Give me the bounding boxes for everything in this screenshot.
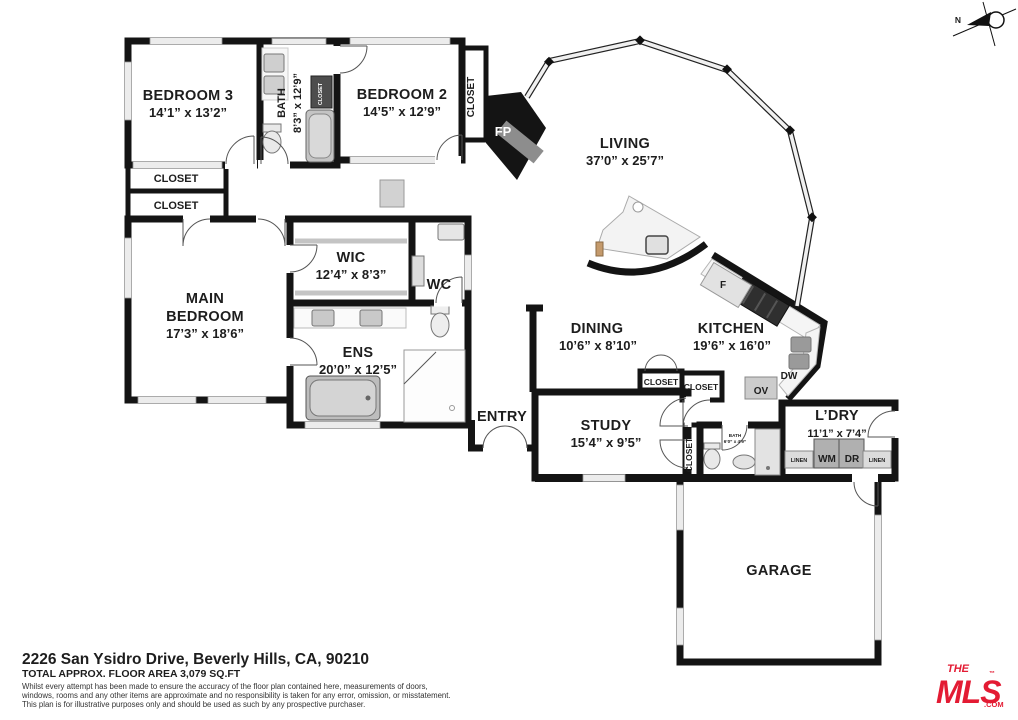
closet-hall-b-label: CLOSET (684, 382, 719, 392)
bar-sink-icon (646, 236, 668, 254)
mls-logo-com: .COM (984, 700, 1004, 709)
window-icon (272, 39, 326, 45)
dishwasher-label: DW (781, 371, 798, 382)
window-icon (583, 475, 625, 482)
small-bath-label: BATH (729, 433, 742, 438)
sink-icon (264, 54, 284, 72)
bath-dims: 8’3” x 12’9” (292, 73, 304, 133)
toilet-icon (704, 443, 720, 449)
dishwasher-icon (791, 337, 811, 352)
main-bedroom-label2: BEDROOM (166, 309, 244, 325)
window-icon (677, 485, 684, 530)
bedroom2-dims: 14’5” x 12’9” (363, 104, 441, 119)
window-icon (305, 422, 380, 429)
mls-logo-tm: ™ (989, 670, 995, 677)
bathtub-inner-icon (309, 114, 331, 158)
bedroom3-label: BEDROOM 3 (143, 88, 234, 104)
address: 2226 San Ysidro Drive, Beverly Hills, CA… (22, 651, 369, 668)
drain-icon (366, 396, 371, 401)
disclaimer-line3: This plan is for illustrative purposes o… (22, 700, 365, 709)
window-icon (125, 62, 132, 120)
study-dims: 15’4” x 9’5” (571, 435, 642, 450)
disclaimer-line2: windows, rooms and any other items are a… (21, 691, 451, 700)
window-icon (133, 162, 222, 169)
floor-area: TOTAL APPROX. FLOOR AREA 3,079 SQ.FT (22, 668, 241, 680)
bar-hole-icon (633, 202, 643, 212)
laundry-dims: 11’1” x 7’4” (807, 428, 866, 440)
footer: 2226 San Ysidro Drive, Beverly Hills, CA… (21, 651, 451, 709)
closet1-label: CLOSET (154, 173, 199, 185)
main-bedroom-dims: 17’3” x 18’6” (166, 326, 244, 341)
floor-plan-page: N BEDROOM 3 14’1” x 13’2” BATH 8’3” x 12… (0, 0, 1018, 720)
wic-label: WIC (336, 250, 365, 266)
linen-label: LINEN (869, 458, 886, 464)
garage-label: GARAGE (746, 563, 811, 579)
window-icon (150, 38, 222, 45)
bedroom2-label: BEDROOM 2 (357, 87, 448, 103)
window-icon (208, 397, 266, 404)
drain-icon (766, 466, 770, 470)
wic-dims: 12’4” x 8’3” (316, 267, 387, 282)
living-dims: 37’0” x 25’7” (586, 153, 664, 168)
skylight-icon (380, 180, 404, 207)
sink-icon (312, 310, 334, 326)
window-icon (875, 515, 882, 640)
dining-label: DINING (571, 321, 624, 337)
closet2-label: CLOSET (154, 200, 199, 212)
sink-icon (360, 310, 382, 326)
fireplace-label: FP (495, 124, 512, 139)
linen-label: LINEN (791, 458, 808, 464)
window-icon (677, 608, 684, 645)
compass-north-label: N (955, 15, 961, 25)
study-label: STUDY (581, 418, 632, 434)
bar-wood-icon (596, 242, 603, 256)
closet-hall-a-label: CLOSET (644, 377, 679, 387)
compass-icon: N (953, 2, 1016, 46)
ens-dims: 20’0” x 12’5” (319, 362, 397, 377)
dishwasher-icon (789, 354, 809, 369)
wall-dining (526, 305, 543, 392)
kitchen-dims: 19’6” x 16’0” (693, 338, 771, 353)
bath-closet-label: CLOSET (318, 82, 324, 105)
shower-icon (404, 350, 465, 422)
sink-icon (733, 455, 755, 469)
window-icon (350, 38, 450, 45)
bath-label: BATH (276, 88, 288, 118)
main-bedroom-label1: MAIN (186, 291, 224, 307)
oven-label: OV (754, 386, 769, 397)
kitchen-label: KITCHEN (698, 321, 765, 337)
dining-dims: 10’6” x 8’10” (559, 338, 637, 353)
bedroom3-dims: 14’1” x 13’2” (149, 105, 227, 120)
wc-label: WC (427, 277, 452, 293)
ens-label: ENS (343, 345, 374, 361)
toilet-icon (704, 449, 720, 469)
toilet-icon (263, 131, 281, 153)
entry-label: ENTRY (477, 409, 527, 425)
window-icon (350, 157, 440, 164)
living-label: LIVING (600, 136, 650, 152)
window-icon (465, 255, 472, 290)
washer-label: WM (818, 454, 836, 465)
fridge-label: F (720, 280, 726, 291)
ens-counter-icon (294, 308, 406, 328)
wc-shelf-icon (412, 256, 424, 286)
closet-vertical-label: CLOSET (684, 437, 694, 472)
window-icon (125, 238, 132, 298)
disclaimer-line1: Whilst every attempt has been made to en… (22, 682, 428, 691)
laundry-label: L’DRY (815, 408, 859, 424)
dryer-label: DR (845, 454, 860, 465)
floor-plan: N BEDROOM 3 14’1” x 13’2” BATH 8’3” x 12… (0, 0, 1018, 720)
toilet-icon (431, 313, 449, 337)
bedroom2-closet-label: CLOSET (466, 77, 477, 118)
mls-logo: THE MLS .COM ™ (936, 663, 1004, 710)
small-bath-dims: 6’0” x 4’9” (724, 439, 746, 444)
window-icon (138, 397, 196, 404)
sink-icon (438, 224, 464, 240)
